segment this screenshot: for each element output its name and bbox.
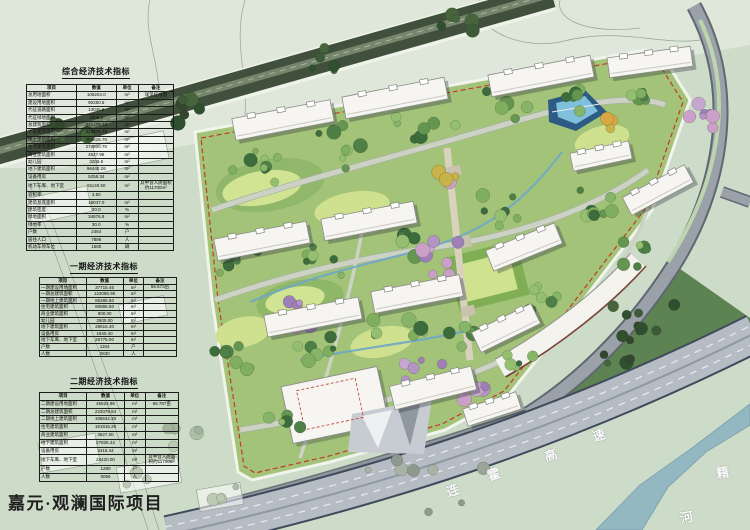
table-header-cell: 备注 [144, 278, 177, 285]
table-row: 人数5056人 [40, 474, 179, 482]
tree [636, 328, 643, 335]
table-cell [138, 192, 173, 199]
table-row: 地上建筑面积281828.70m² [27, 136, 174, 143]
table-cell: 91140.50 [76, 181, 116, 192]
tree [216, 494, 225, 503]
table-cell: m² [123, 291, 144, 298]
table-cell: 34876.8 [76, 214, 116, 221]
table-cell [145, 408, 178, 416]
tree [396, 235, 409, 248]
tree [561, 92, 571, 102]
table-cell [116, 192, 138, 199]
table-cell: m² [116, 99, 138, 106]
tree [521, 101, 533, 113]
table-cell: m² [124, 431, 145, 439]
table-cell: 代征道路面积 [27, 107, 77, 114]
table-cell [145, 439, 178, 447]
table-cell: 345175.74 [76, 122, 116, 129]
table-cell: 住宅建筑面积 [27, 144, 77, 151]
tree [316, 130, 323, 137]
table-cell: 户数 [27, 229, 77, 236]
table-cell: 27835.44 [87, 439, 125, 447]
indicator-table: 项目数值单位备注二期建设用地面积46524.95m²69.787亩二期总建筑面积… [39, 392, 179, 482]
table-cell: % [116, 221, 138, 228]
table-cell: 商业建筑面积 [27, 151, 77, 158]
tree [495, 221, 503, 229]
tree [458, 500, 464, 506]
table-row: 绿地率30.0% [27, 221, 174, 228]
tree [481, 208, 488, 215]
table-cell [144, 304, 177, 311]
table-cell: 281828.70 [76, 136, 116, 143]
tree [509, 194, 516, 201]
table-cell: 二期地上建筑面积 [40, 416, 87, 424]
tree [476, 188, 490, 202]
table-cell: 地下车库、地下室 [27, 181, 77, 192]
table-cell: 商业建筑面积 [40, 310, 87, 317]
table-header-cell: 项目 [40, 278, 87, 285]
table-header-cell: 备注 [145, 393, 178, 401]
tree [367, 313, 380, 326]
table-cell: 幼儿园 [40, 317, 87, 324]
tree [572, 89, 583, 100]
tree [315, 53, 325, 63]
tree [466, 24, 480, 38]
table-cell: 191915.20 [87, 424, 125, 432]
table-cell: 一期地上建筑面积 [40, 297, 87, 304]
table-cell: m² [116, 214, 138, 221]
tree [353, 139, 367, 153]
table-cell: 56.573亩 [144, 284, 177, 291]
table-cell [144, 324, 177, 331]
river-label-char: 籍 [715, 461, 731, 482]
tree [692, 97, 705, 110]
table-cell: 地下建筑面积 [27, 166, 77, 173]
tree [230, 356, 243, 369]
table-cell: 20.0 [76, 206, 116, 213]
masterplan-sheet: 综合经济技术指标 一期经济技术指标 二期经济技术指标 项目数值单位备注总用地面积… [0, 0, 750, 530]
tree [233, 484, 239, 490]
tree [418, 357, 424, 363]
tree [309, 65, 316, 72]
table-header-cell: 单位 [116, 85, 138, 92]
table-cell [138, 229, 173, 236]
tree [338, 272, 345, 279]
table-cell: 96440.26 [76, 166, 116, 173]
table-header-cell: 项目 [27, 85, 77, 92]
table-row: 住宅建筑面积191915.20m² [40, 424, 179, 432]
table-cell: 18047.0 [76, 199, 116, 206]
table-cell: 272800.70 [76, 144, 116, 151]
table-cell: 1680 [76, 244, 116, 251]
indicator-table: 项目数值单位备注一期建设用地面积37715.45m²56.573亩一期总建筑面积… [39, 277, 177, 357]
table-cell: 建筑基底面积 [27, 199, 77, 206]
tree [279, 419, 285, 425]
table-cell: 30.0 [76, 221, 116, 228]
tree [439, 172, 453, 186]
tree [303, 258, 310, 265]
table-cell: 容积率 [27, 192, 77, 199]
tree [622, 310, 631, 319]
table-row: 商业建筑面积4527.98m² [27, 151, 174, 158]
tree [652, 326, 662, 336]
table-cell [145, 424, 178, 432]
table-cell: m² [123, 317, 144, 324]
tree [683, 110, 696, 123]
table-row: 住宅建筑面积272800.70m² [27, 144, 174, 151]
table-cell: 1184 [86, 343, 123, 350]
table-cell: m² [116, 107, 138, 114]
table-cell: 建设用地面积 [27, 99, 77, 106]
table-title-phase2: 二期经济技术指标 [70, 376, 138, 389]
table-cell: 123095.90 [86, 291, 123, 298]
table-cell [144, 310, 177, 317]
table-cell [138, 99, 173, 106]
table-cell: 二期总建筑面积 [40, 408, 87, 416]
project-title: 嘉元·观澜国际项目 [8, 489, 163, 514]
table-header-cell: 数值 [76, 85, 116, 92]
table-cell: 2908.0 [76, 114, 116, 121]
tree [577, 187, 584, 194]
table-cell: 总用地面积 [27, 92, 77, 99]
table-cell: 195542.20 [87, 416, 125, 424]
table-row: 一期地上建筑面积86286.50m² [40, 297, 177, 304]
table-cell [138, 159, 173, 166]
table-cell: 人 [116, 236, 138, 243]
table-cell: m² [124, 424, 145, 432]
tree [600, 351, 608, 359]
tree [228, 166, 237, 175]
table-cell: 3627.00 [87, 431, 125, 439]
tree [511, 114, 520, 123]
tree [428, 270, 437, 279]
table-row: 地下建筑面积27835.44m² [40, 439, 179, 447]
table-row: 机动车停车位1680辆 [27, 244, 174, 251]
table-row: 总建筑面积345175.74m² [27, 122, 174, 129]
tree [414, 321, 429, 336]
tree [302, 354, 316, 368]
table-cell [138, 214, 173, 221]
table-cell [144, 297, 177, 304]
table-cell: 一期总建筑面积 [40, 291, 87, 298]
table-cell: 4527.98 [76, 151, 116, 158]
table-overall-indicators: 项目数值单位备注总用地面积106204.0m²详见红线图建设用地面积90250.… [26, 84, 174, 251]
tree [634, 309, 643, 318]
tree [636, 88, 646, 98]
table-cell: 计容建筑面积 [27, 129, 77, 136]
tree [216, 269, 223, 276]
tree [481, 382, 490, 391]
table-cell: 绿地率 [27, 221, 77, 228]
table-cell [138, 173, 173, 180]
tree [339, 155, 346, 162]
table-cell: m² [116, 166, 138, 173]
tree [452, 15, 460, 23]
table-row: 地下车库、地下室24420.00m²其中含人防面积约11700m² [40, 455, 179, 466]
tree [536, 292, 546, 302]
table-header-cell: 单位 [123, 278, 144, 285]
table-cell [138, 206, 173, 213]
table-header-cell: 项目 [40, 393, 87, 401]
table-cell: m² [116, 159, 138, 166]
table-cell [138, 236, 173, 243]
tree [296, 300, 302, 306]
table-cell: 地下车库、地下室 [40, 455, 87, 466]
table-row: 一期总建筑面积123095.90m² [40, 291, 177, 298]
table-row: 一期建设用地面积37715.45m²56.573亩 [40, 284, 177, 291]
table-cell: m² [123, 310, 144, 317]
table-cell: 28615.40 [86, 324, 123, 331]
table-cell [138, 114, 173, 121]
tree [546, 296, 557, 307]
table-cell: 7886 [76, 236, 116, 243]
table-cell: 详见红线图 [138, 92, 173, 99]
table-cell [144, 291, 177, 298]
table-row: 地下建筑面积96440.26m² [27, 166, 174, 173]
table-cell: 设备用房 [27, 173, 77, 180]
tree [604, 360, 611, 367]
tree [371, 328, 382, 339]
tree [273, 153, 281, 161]
tree [605, 204, 619, 218]
table-cell: 1840.40 [86, 330, 123, 337]
table-cell [145, 416, 178, 424]
table-cell: 24420.00 [87, 455, 125, 466]
tree [443, 327, 455, 339]
table-cell: 建筑密度 [27, 206, 77, 213]
table-cell: 13045.5 [76, 107, 116, 114]
table-header-cell: 备注 [138, 85, 173, 92]
table-cell: 居住人口 [27, 236, 77, 243]
tree [260, 164, 268, 172]
table-row: 商业建筑面积3627.00m² [40, 431, 179, 439]
table-cell: m² [123, 324, 144, 331]
table-cell: 户数 [40, 343, 87, 350]
tree [617, 258, 630, 271]
table-cell: m² [116, 122, 138, 129]
tree [329, 60, 340, 71]
table-row: 设备用房5258.34m² [27, 173, 174, 180]
tree [253, 148, 259, 154]
table-cell: m² [116, 92, 138, 99]
table-row: 绿地面积34876.8m² [27, 214, 174, 221]
table-row: 代征绿地面积2908.0m² [27, 114, 174, 121]
tree [600, 112, 613, 125]
table-cell [138, 166, 173, 173]
tree [605, 192, 615, 202]
table-cell: m² [123, 304, 144, 311]
table-cell [144, 343, 177, 350]
tree [669, 299, 680, 310]
tree [210, 346, 220, 356]
tree [391, 454, 403, 466]
table-cell [138, 136, 173, 143]
table-cell: 地下建筑面积 [40, 324, 87, 331]
table-cell [145, 431, 178, 439]
table-cell: m² [124, 416, 145, 424]
table-row: 容积率3.50 [27, 192, 174, 199]
table-row: 居住人口7886人 [27, 236, 174, 243]
indicator-table: 项目数值单位备注总用地面积106204.0m²详见红线图建设用地面积90250.… [26, 84, 174, 251]
table-row: 人数2830人 [40, 350, 177, 357]
table-cell [144, 350, 177, 357]
table-cell: 5258.34 [76, 173, 116, 180]
table-cell: 户 [123, 343, 144, 350]
table-cell: m² [123, 337, 144, 344]
tree [437, 21, 446, 30]
tree [330, 255, 338, 263]
table-cell: 二期建设用地面积 [40, 400, 87, 408]
tree [234, 341, 244, 351]
tree [529, 285, 539, 295]
table-cell: 辆 [116, 244, 138, 251]
tree [626, 355, 635, 364]
table-cell: m² [124, 439, 145, 447]
table-cell: m² [124, 455, 145, 466]
table-cell: 3205.5 [76, 159, 116, 166]
table-row: 地下车库、地下室91140.50m²其中含人防面积约11700m² [27, 181, 174, 192]
tree [707, 122, 718, 133]
tree [452, 236, 464, 248]
table-row: 设备用房1840.40m² [40, 330, 177, 337]
table-cell: 设备用房 [40, 447, 87, 455]
table-cell: m² [123, 330, 144, 337]
table-cell: m² [116, 151, 138, 158]
tree [428, 235, 440, 247]
tree [589, 210, 600, 221]
tree [516, 360, 522, 366]
table-cell: 住宅建筑面积 [40, 424, 87, 432]
table-cell: 222079.84 [87, 408, 125, 416]
table-cell [138, 129, 173, 136]
tree [636, 242, 644, 250]
table-cell: 人数 [40, 474, 87, 482]
tree [195, 426, 203, 434]
table-row: 计容建筑面积315876.75m² [27, 129, 174, 136]
table-cell: 106204.0 [76, 92, 116, 99]
tree [330, 346, 336, 352]
tree [263, 412, 275, 424]
table-cell: 户 [116, 229, 138, 236]
table-cell: 地下车库、地下室 [40, 337, 87, 344]
table-cell: m² [123, 284, 144, 291]
table-cell: 90250.5 [76, 99, 116, 106]
table-cell: 3415.44 [87, 447, 125, 455]
table-row: 建筑密度20.0% [27, 206, 174, 213]
table-row: 户数1184户 [40, 343, 177, 350]
table-cell: 绿地面积 [27, 214, 77, 221]
tree [327, 125, 341, 139]
table-cell [138, 151, 173, 158]
table-cell: % [116, 206, 138, 213]
table-row: 代征道路面积13045.5m² [27, 107, 174, 114]
tree [415, 243, 430, 258]
table-cell: 地上建筑面积 [27, 136, 77, 143]
table-cell: 3.50 [76, 192, 116, 199]
tree [700, 113, 707, 120]
table-cell: 80885.50 [86, 304, 123, 311]
table-cell [138, 199, 173, 206]
table-cell: 5056 [87, 474, 125, 482]
tree [457, 342, 467, 352]
table-cell [138, 144, 173, 151]
tree [618, 237, 629, 248]
table-cell: 37715.45 [86, 284, 123, 291]
table-cell: m² [116, 144, 138, 151]
table-title-phase1: 一期经济技术指标 [70, 261, 138, 274]
tree [270, 178, 278, 186]
table-cell: m² [124, 408, 145, 416]
table-cell: 户数 [40, 466, 87, 474]
table-row: 建筑基底面积18047.0m² [27, 199, 174, 206]
table-cell: 人 [123, 350, 144, 357]
tree [425, 508, 433, 516]
table-cell: m² [124, 400, 145, 408]
tree [220, 347, 230, 357]
tree [513, 214, 521, 222]
table-cell: m² [116, 114, 138, 121]
table-row: 二期地上建筑面积195542.20m² [40, 416, 179, 424]
tree [194, 104, 205, 115]
tree [626, 90, 637, 101]
table-cell: 地下建筑面积 [40, 439, 87, 447]
table-cell: 86286.50 [86, 297, 123, 304]
tree [428, 465, 438, 475]
table-header-cell: 数值 [87, 393, 125, 401]
table-row: 户数1280户 [40, 466, 179, 474]
tree [706, 109, 720, 123]
table-phase1-indicators: 项目数值单位备注一期建设用地面积37715.45m²56.573亩一期总建筑面积… [39, 277, 177, 357]
table-header-cell: 单位 [124, 393, 145, 401]
table-cell [138, 244, 173, 251]
table-cell: 1280 [87, 466, 125, 474]
tree [617, 330, 629, 342]
tree [418, 122, 430, 134]
table-row: 幼儿园2500.00m² [40, 317, 177, 324]
table-phase2-indicators: 项目数值单位备注二期建设用地面积46524.95m²69.787亩二期总建筑面积… [39, 392, 179, 482]
table-cell: 代征绿地面积 [27, 114, 77, 121]
table-cell: 2830 [86, 350, 123, 357]
table-cell: 商业建筑面积 [40, 431, 87, 439]
tree [178, 95, 187, 104]
table-cell: 69.787亩 [145, 400, 178, 408]
table-cell: 315876.75 [76, 129, 116, 136]
table-row: 设备用房3415.44m² [40, 447, 179, 455]
table-row: 地下建筑面积28615.40m² [40, 324, 177, 331]
table-cell: m² [116, 173, 138, 180]
table-cell [145, 474, 178, 482]
table-cell: 900.00 [86, 310, 123, 317]
table-row: 建设用地面积90250.5m² [27, 99, 174, 106]
tree [495, 101, 509, 115]
table-cell: 机动车停车位 [27, 244, 77, 251]
tree [608, 301, 619, 312]
table-cell: m² [124, 447, 145, 455]
table-cell: 人数 [40, 350, 87, 357]
tree [574, 106, 585, 117]
table-cell [138, 107, 173, 114]
table-row: 户数2464户 [27, 229, 174, 236]
table-header-cell: 数值 [86, 278, 123, 285]
table-title-overall: 综合经济技术指标 [62, 66, 130, 79]
table-row: 二期总建筑面积222079.84m² [40, 408, 179, 416]
tree [459, 321, 471, 333]
table-cell: m² [116, 129, 138, 136]
table-cell: m² [116, 199, 138, 206]
table-cell: 总建筑面积 [27, 122, 77, 129]
tree [633, 262, 641, 270]
table-cell: 一期建设用地面积 [40, 284, 87, 291]
